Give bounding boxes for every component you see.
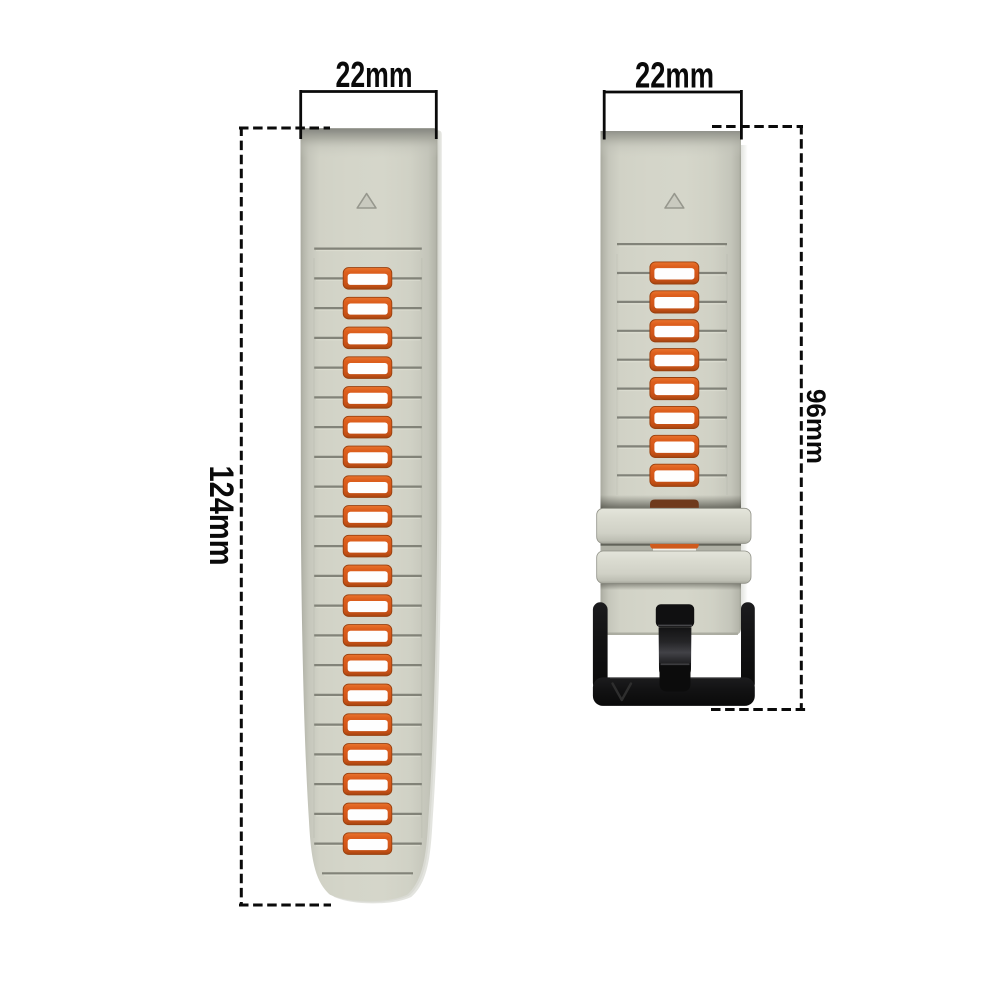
svg-text:96mm: 96mm: [801, 389, 831, 464]
svg-text:22mm: 22mm: [635, 55, 714, 96]
svg-text:22mm: 22mm: [336, 54, 413, 95]
svg-text:124mm: 124mm: [202, 466, 240, 566]
